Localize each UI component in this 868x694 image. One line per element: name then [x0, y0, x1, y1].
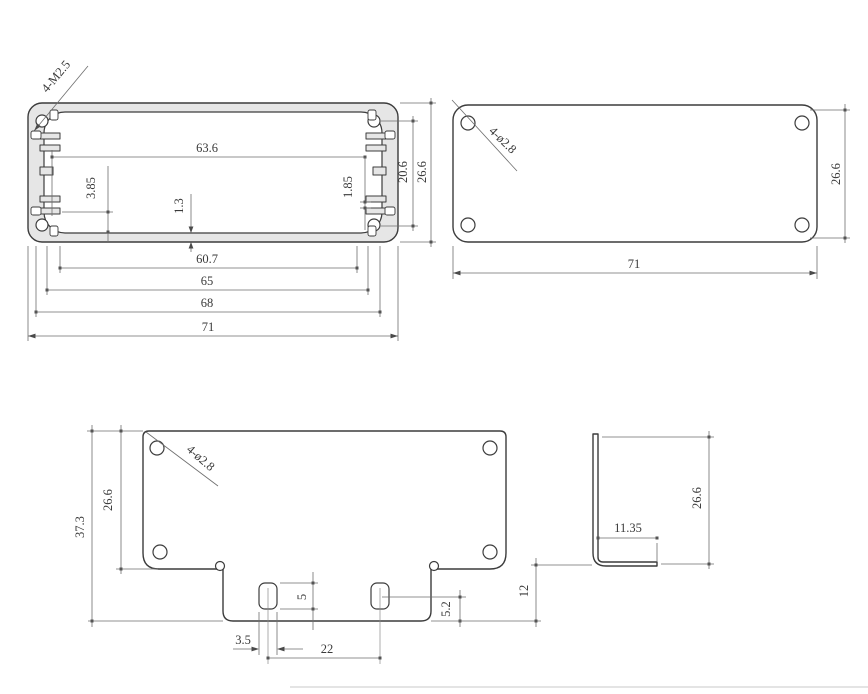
end-plate-outline	[453, 105, 817, 242]
end-plate-hole	[795, 116, 809, 130]
dim-profile-w-outer: 68	[201, 296, 214, 310]
dim-flat-plate-height: 26.6	[101, 489, 115, 511]
dim-profile-w-mid: 65	[201, 274, 214, 288]
flat-hole	[483, 441, 497, 455]
technical-drawing-page: 4-M2.5 63.6 3.85 1.3 1.85 20.6	[0, 0, 868, 694]
bend-relief-notch	[430, 562, 439, 571]
end-plate-hole	[795, 218, 809, 232]
dim-profile-boss-pitch: 20.6	[396, 161, 410, 183]
dim-profile-slot-left: 3.85	[84, 177, 98, 199]
end-plate-hole	[461, 218, 475, 232]
flat-hole	[153, 545, 167, 559]
dim-profile-floor: 1.3	[172, 198, 186, 214]
dim-side-flange-length: 11.35	[614, 521, 642, 535]
dim-side-height: 26.6	[690, 487, 704, 509]
drawing-canvas: 4-M2.5 63.6 3.85 1.3 1.85 20.6	[0, 0, 868, 694]
dim-flat-slot-center: 5.2	[439, 601, 453, 617]
dim-profile-slot-right: 1.85	[341, 176, 355, 198]
flat-hole	[150, 441, 164, 455]
view-side-profile: 11.35 26.6	[593, 431, 714, 569]
dim-plate-height: 26.6	[829, 163, 843, 185]
dim-flat-slot-height: 5	[295, 594, 309, 600]
dim-profile-height: 26.6	[415, 161, 429, 183]
side-profile-outline	[593, 434, 657, 566]
bend-relief-notch	[216, 562, 225, 571]
dim-profile-w-overall: 71	[202, 320, 215, 334]
dim-flat-slot-width: 3.5	[235, 633, 251, 647]
dim-profile-inner-width: 63.6	[196, 141, 218, 155]
dim-profile-w-inner: 60.7	[196, 252, 218, 266]
dim-flat-overall-height: 37.3	[73, 516, 87, 538]
view-profile-section: 4-M2.5 63.6 3.85 1.3 1.85 20.6	[28, 58, 436, 341]
view-end-plate: 4-ø2.8 26.6 71	[452, 100, 850, 279]
dim-plate-width: 71	[628, 257, 641, 271]
profile-cavity	[44, 112, 382, 233]
flat-hole	[483, 545, 497, 559]
view-flat-pattern: 4-ø2.8 37.3 26.6 5 5.2 12	[73, 425, 592, 664]
dim-flat-slot-pitch: 22	[321, 642, 334, 656]
dim-flat-flange-height: 12	[517, 585, 531, 598]
